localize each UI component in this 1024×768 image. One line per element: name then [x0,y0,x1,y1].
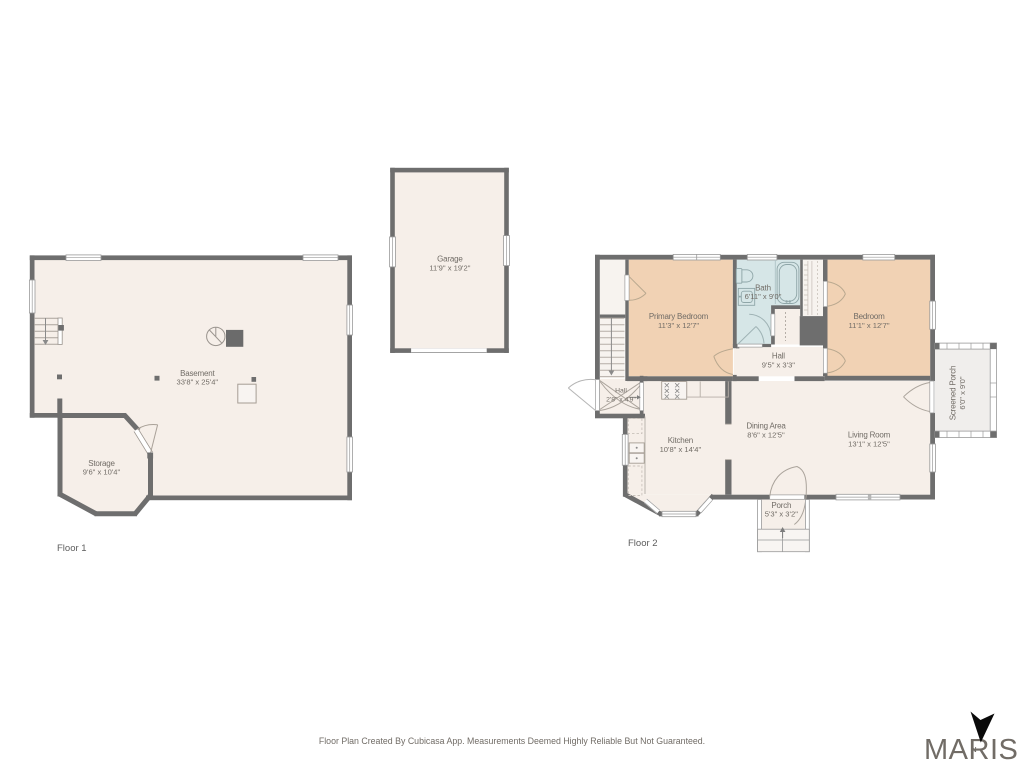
svg-text:6'0" x 9'0": 6'0" x 9'0" [958,376,967,410]
svg-text:2'8" x 4'9": 2'8" x 4'9" [606,397,636,404]
svg-text:11'1" x 12'7": 11'1" x 12'7" [848,321,889,330]
svg-text:Bath: Bath [755,284,771,293]
svg-text:Kitchen: Kitchen [668,436,693,445]
svg-text:Dining Area: Dining Area [746,422,786,431]
svg-text:Floor Plan Created By Cubicasa: Floor Plan Created By Cubicasa App. Meas… [319,736,705,746]
svg-text:11'9" x 19'2": 11'9" x 19'2" [429,263,470,272]
svg-text:5'3" x 3'2": 5'3" x 3'2" [765,510,799,519]
svg-text:Floor 2: Floor 2 [628,538,658,549]
svg-text:9'6" x 10'4": 9'6" x 10'4" [83,467,121,476]
svg-text:Screened Porch: Screened Porch [949,366,958,421]
svg-text:Hall: Hall [615,388,627,395]
svg-text:Garage: Garage [437,255,463,264]
svg-text:Floor 1: Floor 1 [57,543,87,554]
svg-text:Porch: Porch [771,501,791,510]
svg-text:Hall: Hall [772,352,785,361]
svg-text:10'8" x 14'4": 10'8" x 14'4" [660,445,702,454]
svg-text:Primary Bedroom: Primary Bedroom [649,312,709,321]
svg-text:11'3" x 12'7": 11'3" x 12'7" [658,321,699,330]
svg-text:Bedroom: Bedroom [853,312,885,321]
svg-text:Living Room: Living Room [848,431,891,440]
svg-text:9'5" x 3'3": 9'5" x 3'3" [762,360,796,369]
svg-text:33'8" x 25'4": 33'8" x 25'4" [176,378,218,387]
svg-text:8'6" x 12'5": 8'6" x 12'5" [747,430,785,439]
svg-text:6'11" x 9'0": 6'11" x 9'0" [745,292,782,301]
svg-text:N: N [972,747,977,754]
svg-text:13'1" x 12'5": 13'1" x 12'5" [848,439,890,448]
